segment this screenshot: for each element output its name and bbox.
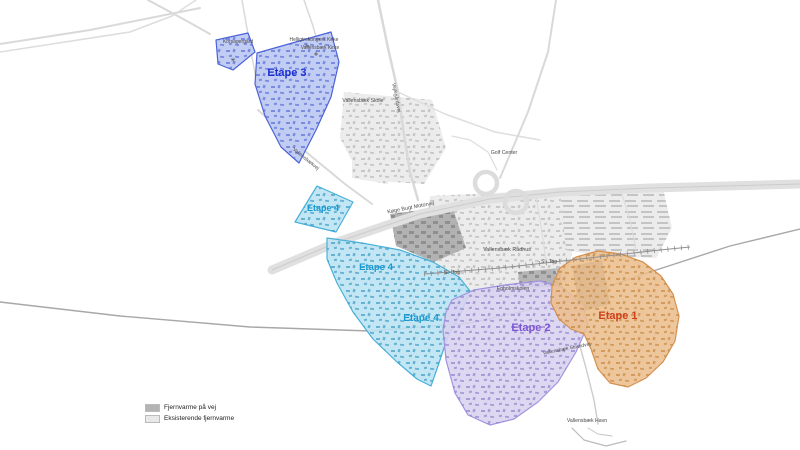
zone-label-etape-2: Etape 2 (511, 322, 550, 334)
zone-label-etape-1: Etape 1 (598, 310, 637, 322)
harbor-quay-a (572, 428, 626, 446)
legend-swatch-planned-icon (145, 404, 160, 412)
legend: Fjernvarme på vej Eksisterende fjernvarm… (145, 404, 234, 423)
legend-label-existing: Eksisterende fjernvarme (164, 416, 234, 423)
zone-label-etape-4-main: Etape 4 (359, 262, 394, 273)
zone-texture-etape-3 (255, 32, 339, 163)
top-left-road-a (0, 8, 200, 44)
zone-label-etape-4-main: Etape 4 (403, 313, 439, 324)
legend-label-planned: Fjernvarme på vej (164, 405, 216, 412)
top-left-road-c (0, 0, 196, 52)
legend-swatch-existing-icon (145, 415, 160, 423)
mill-icon: ✳ (230, 57, 235, 64)
legend-item-existing: Eksisterende fjernvarme (145, 415, 234, 423)
svg-text:✳: ✳ (230, 57, 235, 64)
harbor-quay-b (588, 428, 612, 436)
place-label: Vallensbæk Rådhus (483, 246, 531, 253)
place-label: S - Tog (541, 259, 557, 265)
place-label: Helligtrekongers Kirke (290, 37, 339, 43)
zone-label-etape-4-west: Etape 4 (307, 203, 339, 213)
map: ✳KorsagergårdHelligtrekongers KirkeValle… (0, 0, 800, 450)
place-label: S - Tog (444, 270, 460, 276)
place-label: Vallensbæk Skole (342, 98, 383, 104)
zone-label-etape-3: Etape 3 (267, 67, 306, 79)
place-label: Golf Center (491, 150, 518, 156)
motorway-interchange-loop-0 (475, 172, 497, 194)
place-label: Egholmskolen (497, 286, 530, 292)
legend-item-planned: Fjernvarme på vej (145, 404, 234, 412)
roads-layer (0, 0, 800, 446)
place-label: Korsagergård (223, 38, 254, 45)
place-label: Vallensbæk Kirke (301, 45, 340, 51)
place-label: Vallensbæk Havn (567, 418, 607, 424)
map-canvas: ✳KorsagergårdHelligtrekongers KirkeValle… (0, 0, 800, 450)
